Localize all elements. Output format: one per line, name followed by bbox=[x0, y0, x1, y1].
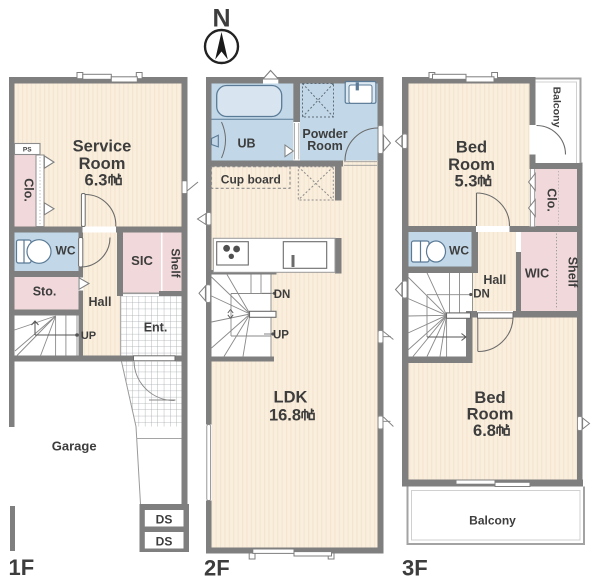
svg-text:DS: DS bbox=[156, 535, 173, 549]
svg-text:Bed: Bed bbox=[456, 139, 487, 157]
svg-text:3F: 3F bbox=[402, 556, 428, 581]
svg-text:Clo.: Clo. bbox=[545, 188, 559, 212]
svg-text:N: N bbox=[212, 5, 230, 33]
svg-text:1F: 1F bbox=[9, 555, 35, 580]
svg-text:16.8: 16.8 bbox=[269, 407, 301, 425]
svg-text:Shelf: Shelf bbox=[169, 248, 183, 278]
svg-text:WIC: WIC bbox=[525, 267, 549, 281]
svg-text:5.3: 5.3 bbox=[455, 173, 478, 191]
svg-text:Balcony: Balcony bbox=[551, 87, 563, 128]
svg-text:UP: UP bbox=[273, 329, 289, 341]
svg-text:Room: Room bbox=[448, 156, 495, 174]
svg-text:Garage: Garage bbox=[52, 439, 97, 454]
svg-text:WC: WC bbox=[449, 243, 469, 257]
svg-text:Shelf: Shelf bbox=[566, 257, 580, 288]
svg-text:WC: WC bbox=[56, 243, 76, 257]
svg-text:6.8: 6.8 bbox=[473, 422, 496, 440]
svg-text:LDK: LDK bbox=[274, 389, 308, 407]
svg-text:Room: Room bbox=[79, 155, 126, 173]
svg-text:Room: Room bbox=[467, 406, 514, 424]
svg-text:Clo.: Clo. bbox=[22, 178, 36, 202]
svg-text:DN: DN bbox=[473, 289, 490, 301]
svg-text:UP: UP bbox=[81, 330, 96, 342]
svg-text:SIC: SIC bbox=[131, 253, 153, 268]
svg-text:UB: UB bbox=[237, 136, 255, 150]
svg-text:Sto.: Sto. bbox=[33, 285, 57, 299]
svg-text:6.3: 6.3 bbox=[85, 172, 108, 190]
svg-text:Balcony: Balcony bbox=[469, 514, 516, 528]
svg-text:Bed: Bed bbox=[474, 389, 505, 407]
svg-text:Cup board: Cup board bbox=[221, 173, 281, 187]
svg-text:Hall: Hall bbox=[483, 273, 506, 287]
svg-text:DS: DS bbox=[156, 513, 173, 527]
svg-text:Hall: Hall bbox=[89, 295, 112, 309]
svg-text:PS: PS bbox=[23, 147, 32, 154]
svg-text:2F: 2F bbox=[204, 555, 230, 580]
svg-text:Ent.: Ent. bbox=[144, 321, 168, 335]
svg-text:DN: DN bbox=[274, 289, 291, 301]
svg-text:Room: Room bbox=[307, 139, 342, 153]
svg-text:Service: Service bbox=[73, 138, 132, 156]
